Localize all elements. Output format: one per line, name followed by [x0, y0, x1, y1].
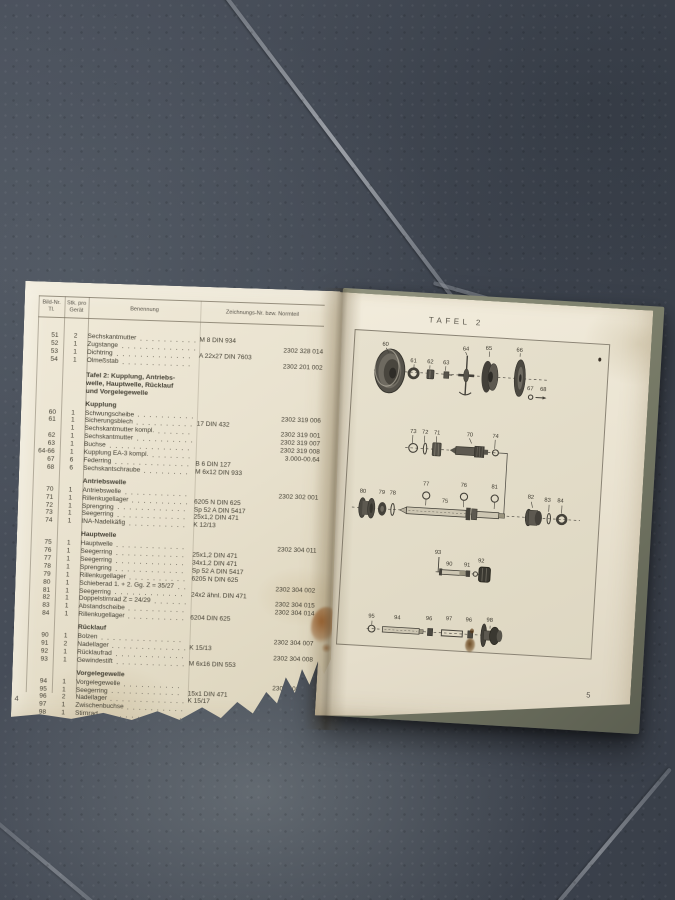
part-62-nut: [427, 370, 434, 379]
cell-partnumber: [268, 506, 318, 508]
cell-partnumber: [273, 360, 323, 362]
diagram-part-label: 61: [410, 358, 417, 364]
exploded-parts-diagram: 6061626364656667687372717074807978777576…: [337, 330, 607, 656]
part-65-clutch-disc: [481, 360, 499, 393]
cell-normteil: [189, 657, 263, 659]
cell-bildnr: 93: [27, 655, 53, 664]
diagram-part-label: 84: [557, 498, 565, 504]
cell-bildnr: [34, 429, 60, 430]
part-96b-needle-bearing: [468, 631, 473, 638]
part-82-double-gear: [525, 509, 543, 527]
cell-normteil: M 6x12 DIN 933: [195, 468, 269, 478]
header-qty: Stk. pro Gerät: [64, 300, 88, 315]
diagram-part-label: 97: [446, 616, 453, 622]
cell-partnumber: [266, 559, 316, 561]
diagram-part-label: 60: [382, 342, 389, 348]
countershaft-row: [366, 617, 503, 648]
part-91-needle-bearing: [466, 570, 478, 577]
cell-bildnr: 68: [33, 463, 59, 472]
cell-partnumber: [268, 521, 318, 523]
cell-normteil: [196, 442, 270, 444]
part-79-bearing: [378, 502, 387, 516]
part-name: Gewindestift: [77, 657, 113, 666]
part-63-bushing: [444, 372, 453, 379]
part-81-seegerring: [491, 495, 499, 503]
part-64-pressure-shaft: [457, 355, 475, 396]
header-bildnr: Bild-Nr. Tl.: [38, 299, 64, 314]
cell-normteil: [197, 418, 271, 420]
dot-leader: [128, 618, 186, 621]
cell-normteil: [196, 450, 270, 452]
diagram-part-label: 66: [516, 348, 523, 354]
diagram-part-label: 79: [378, 490, 385, 496]
cell-bildnr: 54: [37, 355, 63, 364]
part-75-main-shaft: [399, 504, 505, 523]
diagram-part-label: 80: [360, 489, 367, 495]
cell-qty: 1: [57, 517, 81, 526]
part-97-spacer-tube: [441, 630, 462, 637]
diagram-part-label: 91: [464, 562, 471, 568]
part-67-68-screw-washer: [528, 395, 546, 400]
parts-table: Bild-Nr. Tl. Stk. pro Gerät Benennung Ze…: [25, 295, 325, 718]
dot-leader: [178, 588, 187, 589]
dot-leader: [129, 525, 189, 528]
diagram-part-label: 76: [460, 483, 467, 489]
diagram-frame: 6061626364656667687372717074807978777576…: [336, 329, 610, 660]
part-98-spur-gear: [480, 624, 503, 648]
cell-normteil: [194, 495, 268, 497]
cell-qty: 1: [53, 656, 77, 665]
cell-normteil: [196, 458, 270, 460]
cell-normteil: [196, 434, 270, 436]
diagram-part-label: 77: [423, 481, 430, 487]
diagram-part-label: 90: [446, 561, 453, 567]
diagram-part-label: 78: [389, 490, 396, 496]
diagram-part-label: 96: [426, 616, 433, 622]
diagram-part-label: 83: [544, 498, 551, 504]
part-84-bearing: [557, 515, 566, 524]
part-name: INA-Nadelkäfig: [81, 518, 125, 527]
diagram-part-label: 75: [442, 498, 449, 504]
cell-partnumber: [269, 468, 319, 470]
diagram-part-label: 92: [478, 558, 485, 564]
part-80-sliding-gear: [358, 498, 375, 519]
diagram-part-label: 63: [443, 360, 450, 366]
table-group-heading: Tafel 2: Kupplung, Antriebs-welle, Haupt…: [86, 372, 205, 400]
diagram-part-label: 71: [434, 430, 441, 436]
diagram-part-label: 73: [410, 429, 417, 435]
part-name: Sechskantschraube: [83, 465, 140, 475]
dot-leader: [154, 603, 186, 605]
parts-table-body: 512SechskantmutterM 8 DIN 934521Zugstang…: [25, 319, 324, 725]
part-96-needle-bearing: [427, 628, 432, 635]
cell-bildnr: 74: [31, 516, 57, 525]
cell-partnumber: [271, 428, 321, 430]
cell-partnumber: 2302 319 006: [271, 416, 321, 426]
diagram-part-label: 98: [486, 618, 493, 624]
diagram-part-label: 72: [422, 430, 429, 436]
diagram-part-label: 74: [492, 434, 500, 440]
cell-partnumber: 2302 304 011: [266, 546, 316, 556]
cell-partnumber: [269, 476, 319, 478]
part-72-snap-ring: [423, 443, 427, 454]
cell-partnumber: [267, 529, 317, 531]
diagram-part-label: 93: [435, 550, 442, 556]
dot-leader: [158, 433, 192, 435]
dot-leader: [116, 663, 184, 666]
diagram-part-label: 95: [368, 613, 375, 619]
cell-normteil: 6204 DIN 625: [190, 615, 264, 625]
page-right: TAFEL 2: [315, 292, 654, 734]
diagram-part-label: 94: [394, 615, 402, 621]
input-shaft-row: [401, 435, 508, 516]
cell-normteil: [191, 604, 265, 606]
header-zeichnungsnr: Zeichnungs-Nr. bzw. Normteil: [200, 309, 324, 320]
cell-bildnr: 84: [28, 609, 54, 618]
cell-normteil: K 12/13: [193, 522, 267, 532]
cell-normteil: [191, 588, 265, 590]
main-shaft-row: [351, 487, 581, 531]
part-77-seegerring: [422, 492, 430, 500]
cell-partnumber: 2302 201 002: [273, 363, 323, 373]
diagram-part-label: 64: [463, 346, 471, 352]
cell-partnumber: [265, 583, 315, 585]
diagram-part-label: 68: [540, 387, 547, 393]
cell-normteil: [188, 687, 262, 689]
part-92-reverse-wheel: [478, 567, 490, 583]
part-61-lockplate: [409, 368, 419, 378]
page-left: Bild-Nr. Tl. Stk. pro Gerät Benennung Ze…: [11, 281, 343, 729]
part-94-countershaft: [382, 627, 423, 635]
cell-normteil: M 6x16 DIN 553: [189, 660, 263, 670]
page-number-right: 5: [586, 690, 591, 699]
photo-scene: TAFEL 2: [0, 0, 675, 900]
diagram-part-label: 62: [427, 359, 434, 365]
cell-partnumber: [266, 575, 316, 577]
cell-normteil: [199, 365, 273, 367]
cell-partnumber: [273, 344, 323, 346]
cell-partnumber: 2302 302 001: [268, 493, 318, 503]
cell-normteil: [193, 549, 267, 551]
diagram-part-label: 70: [466, 432, 473, 438]
cell-bildnr: 61: [35, 416, 61, 425]
header-benennung: Benennung: [88, 305, 200, 316]
cell-qty: 1: [63, 356, 87, 365]
diagram-part-label: 67: [527, 386, 534, 392]
cell-partnumber: [266, 567, 316, 569]
page-number-left: 4: [14, 694, 18, 703]
part-66-pressure-plate: [513, 359, 526, 396]
part-90-pin: [439, 568, 466, 577]
part-60-flywheel: [374, 348, 406, 393]
cell-partnumber: 2302 328 014: [273, 347, 323, 357]
dot-leader: [144, 472, 191, 475]
cell-qty: 6: [59, 464, 83, 473]
cell-partnumber: [268, 514, 318, 516]
part-78-snap-ring: [391, 503, 395, 515]
part-name: Ölmeßstab: [87, 357, 119, 366]
part-76-seegerring: [460, 493, 468, 501]
dot-leader: [152, 456, 191, 458]
clutch-row: [373, 345, 550, 402]
cell-normteil: [190, 612, 264, 614]
cell-qty: 1: [54, 610, 78, 619]
part-70-input-shaft: [450, 445, 489, 458]
dot-leader: [122, 363, 194, 366]
cell-partnumber: [265, 599, 315, 601]
diagram-part-label: 82: [527, 495, 534, 501]
diagram-part-label: 65: [486, 346, 493, 352]
cell-partnumber: 3.000-00.64: [269, 455, 319, 465]
diagram-part-label: 81: [491, 484, 498, 490]
diagram-part-label: 96: [465, 617, 472, 623]
cell-normteil: [189, 642, 263, 644]
cell-normteil: [199, 350, 273, 352]
part-name: Rillenkugellager: [78, 611, 124, 620]
part-71-bearing: [432, 443, 441, 456]
